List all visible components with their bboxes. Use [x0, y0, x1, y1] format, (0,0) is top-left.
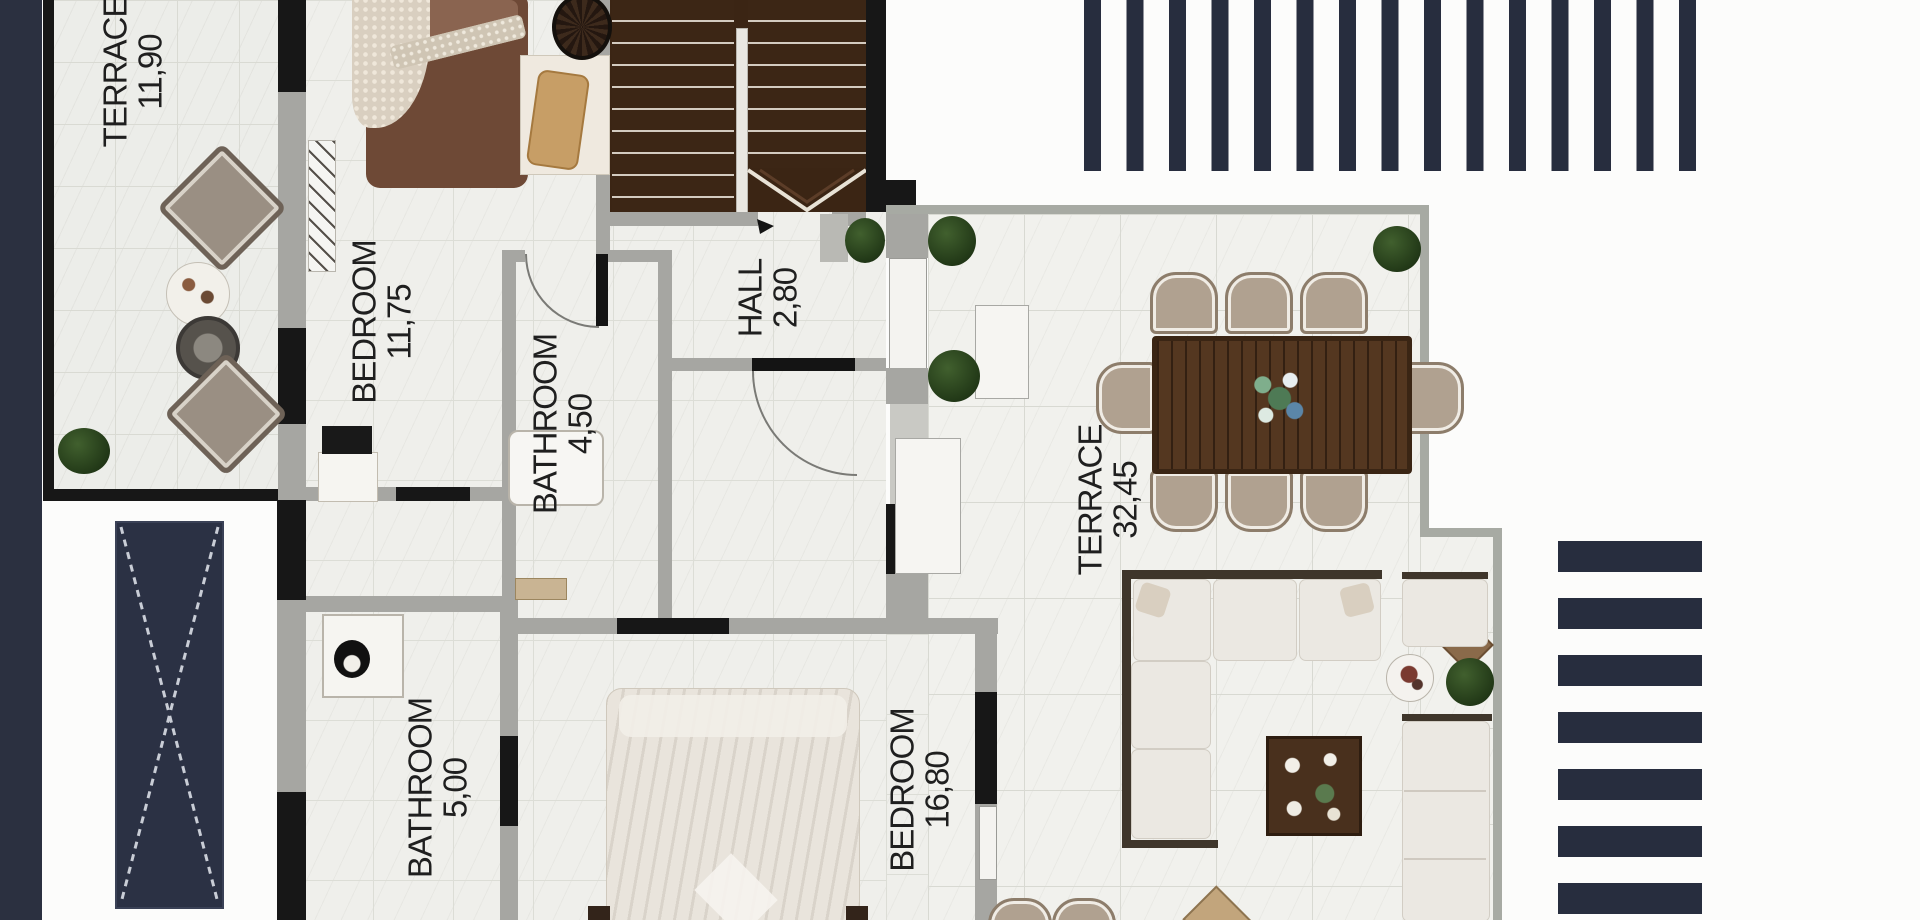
bed-bottom-throw: [694, 853, 777, 920]
dining-chair-bottom-2: [1225, 470, 1293, 532]
bedroom2-window: [979, 806, 997, 880]
bed-bottom-duvet-fold: [619, 695, 847, 737]
label-terrace1-area: 11,90: [133, 0, 168, 147]
west-wall-lower-pier2: [277, 792, 306, 920]
sofa-frame-corner: [1122, 840, 1218, 848]
dining-chair-top-2: [1225, 272, 1293, 334]
bathroom1-top-wall-a: [502, 250, 525, 262]
label-hall-area: 2,80: [768, 259, 803, 338]
sofa-frame-top: [1122, 570, 1382, 579]
bedroom1-bottom-wall-pier: [396, 487, 470, 501]
terrace1-left-wall: [43, 0, 54, 500]
east-wall-seg2: [886, 368, 928, 404]
label-bedroom2-name: BEDROOM: [885, 708, 920, 872]
terrace2-step-wall: [1420, 528, 1502, 537]
terrace2-top-wall: [886, 205, 1426, 214]
sofa-cushion-left-1: [1131, 661, 1211, 749]
hall-planter-block: [820, 214, 848, 262]
stair-exit-arrow: [756, 218, 776, 236]
label-bathroom2-name: BATHROOM: [403, 698, 438, 878]
bed-double-bottom: [606, 688, 860, 920]
armchair-right: [1402, 579, 1488, 647]
dining-chair-top-1: [1150, 272, 1218, 334]
dining-centerpiece-flowers: [1240, 362, 1316, 438]
sliding-panel-open-1: [975, 305, 1029, 399]
dining-chair-left: [1096, 362, 1156, 434]
label-bedroom1: BEDROOM 11,75: [347, 240, 416, 404]
plant-hall-corner: [845, 218, 885, 263]
bathroom2-right-wall-pier: [500, 736, 518, 826]
west-wall-upper-pier1: [278, 0, 306, 92]
label-hall: HALL 2,80: [733, 259, 802, 338]
east-wall-seg4: [886, 574, 928, 620]
stair-bottom-wall-a: [610, 212, 758, 226]
armchair-right-frame: [1402, 572, 1488, 579]
west-wall-lower-pier1: [277, 500, 306, 600]
bedroom2-right-wall-pier: [975, 692, 997, 804]
sliding-panel-open-2: [895, 438, 961, 574]
label-bathroom2-area: 5,00: [438, 698, 473, 878]
east-wall-return: [886, 618, 998, 634]
chaise-seam-2: [1404, 858, 1486, 860]
label-terrace2-name: TERRACE: [1073, 425, 1108, 576]
east-sliding-door: [889, 258, 927, 370]
terrace2-right-wall-lower: [1493, 528, 1502, 920]
left-accent-band: [0, 0, 42, 920]
hall-south-wall-b: [855, 358, 886, 371]
floor-plan: TERRACE 11,90 BEDROOM 11,75 BATHROOM 4,5…: [0, 0, 1920, 920]
bedroom2-top-wall-pier: [617, 618, 729, 634]
chaise-seam-1: [1404, 790, 1486, 792]
bedroom1-closet: [308, 140, 336, 272]
bathroom2-toilet: [334, 640, 370, 678]
bathroom1-right-wall: [658, 250, 672, 620]
deck-x-lines: [117, 523, 222, 907]
label-terrace1-name: TERRACE: [98, 0, 133, 147]
sofa-cushion-left-2: [1131, 749, 1211, 839]
plant-terrace2-b: [928, 350, 980, 402]
bed-bottom-post-right: [846, 906, 868, 920]
label-bedroom2-area: 16,80: [920, 708, 955, 872]
coffee-table: [1266, 736, 1362, 836]
sofa-cushion-top-2: [1213, 579, 1297, 661]
chaise-right: [1402, 721, 1490, 920]
pergola-stripes-top: [1084, 0, 1710, 171]
hall-south-wall-a: [672, 358, 752, 371]
corridor-top-wall: [306, 596, 518, 612]
dining-chair-bottom-1: [1150, 470, 1218, 532]
label-bathroom1-area: 4,50: [563, 334, 598, 514]
chaise-right-frame: [1402, 714, 1492, 721]
deck-x-panel: [115, 521, 224, 909]
label-bedroom2: BEDROOM 16,80: [885, 708, 954, 872]
bathroom1-top-wall-b: [600, 250, 662, 262]
plant-terrace2-corner: [1373, 226, 1421, 272]
label-bedroom1-name: BEDROOM: [347, 240, 382, 404]
bedroom1-desk-counter: [322, 426, 372, 454]
label-hall-name: HALL: [733, 259, 768, 338]
label-bathroom1: BATHROOM 4,50: [528, 334, 597, 514]
label-terrace2-area: 32,45: [1108, 425, 1143, 576]
east-wall-seg1: [886, 212, 928, 258]
label-bedroom1-area: 11,75: [382, 240, 417, 404]
side-table-flowers: [1386, 654, 1434, 702]
hall-door-leaf: [752, 358, 855, 371]
bedroom1-desk-base: [318, 452, 378, 502]
terrace1-bottom-wall: [43, 489, 290, 501]
dining-chair-right: [1404, 362, 1464, 434]
plant-terrace1: [58, 428, 110, 474]
label-bathroom1-name: BATHROOM: [528, 334, 563, 514]
stair-winder-arrow: [610, 0, 866, 212]
plant-terrace2-a: [928, 216, 976, 266]
bathroom1-door-leaf: [596, 254, 608, 326]
pergola-bars-right: [1558, 541, 1702, 920]
staircase: [610, 0, 866, 212]
sofa-frame-left: [1122, 570, 1131, 846]
corridor-bench: [515, 578, 567, 600]
dining-chair-top-3: [1300, 272, 1368, 334]
label-bathroom2: BATHROOM 5,00: [403, 698, 472, 878]
label-terrace2: TERRACE 32,45: [1073, 425, 1142, 576]
plant-sofa: [1446, 658, 1494, 706]
bed-bottom-post-left: [588, 906, 610, 920]
bed-double-top: [366, 0, 528, 188]
dining-chair-bottom-3: [1300, 470, 1368, 532]
label-terrace1: TERRACE 11,90: [98, 0, 167, 147]
